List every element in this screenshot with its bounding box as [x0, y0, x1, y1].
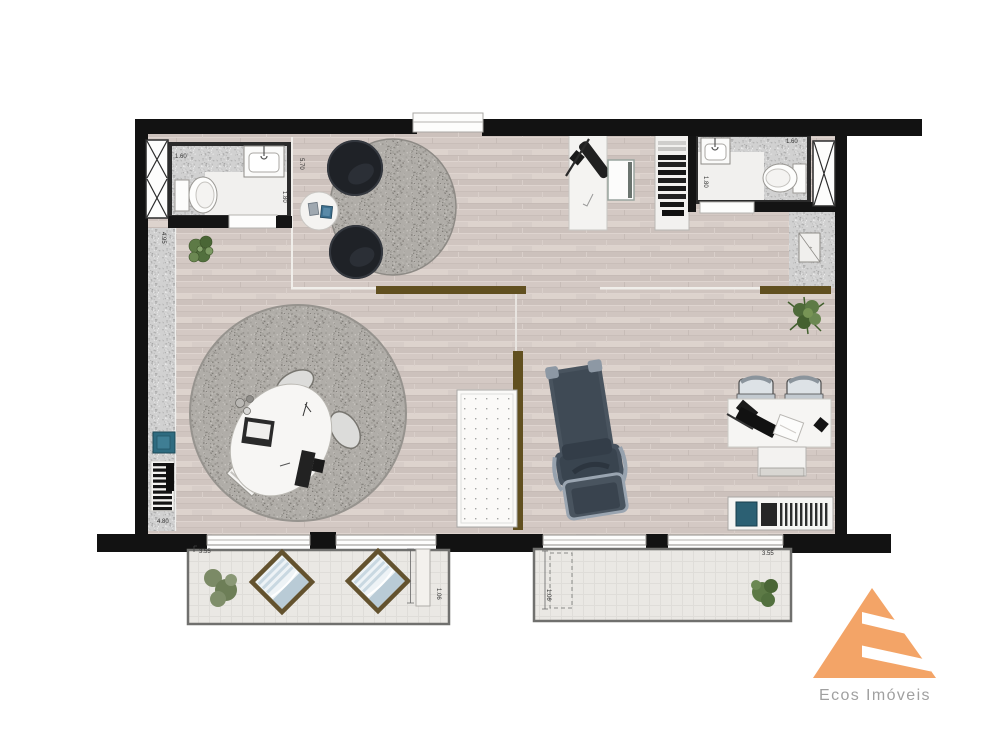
- svg-text:1.60: 1.60: [786, 139, 798, 145]
- svg-text:4.80: 4.80: [157, 519, 169, 525]
- svg-text:3.55: 3.55: [199, 549, 211, 555]
- svg-text:5.70: 5.70: [298, 158, 304, 170]
- svg-text:3.55: 3.55: [762, 551, 774, 557]
- svg-text:4.95: 4.95: [160, 232, 166, 244]
- svg-text:1.06: 1.06: [435, 588, 441, 600]
- svg-text:1.80: 1.80: [281, 191, 287, 203]
- svg-text:1.06: 1.06: [545, 589, 551, 601]
- svg-text:Ecos Imóveis: Ecos Imóveis: [819, 687, 931, 704]
- svg-text:1.80: 1.80: [702, 176, 708, 188]
- svg-text:1.60: 1.60: [175, 154, 187, 160]
